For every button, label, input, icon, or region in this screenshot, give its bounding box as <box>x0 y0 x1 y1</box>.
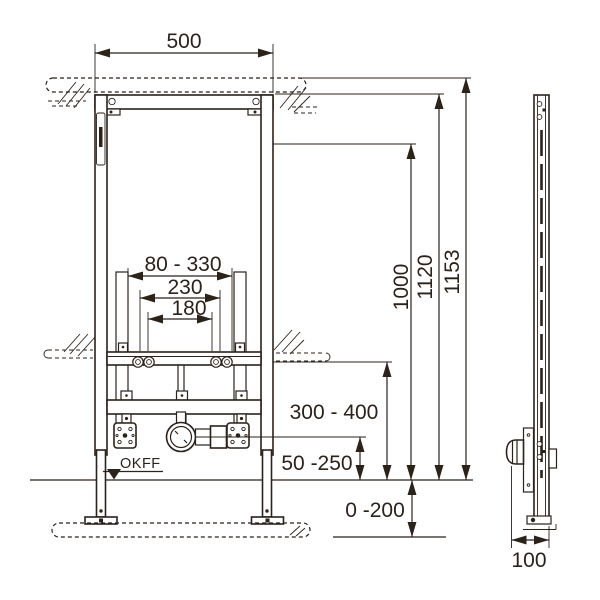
dim-label-connection-outer: 230 <box>167 276 202 299</box>
side-drain-cap <box>507 440 524 464</box>
side-foot <box>527 516 551 524</box>
bottom-slab <box>52 523 310 537</box>
wall-anchor-left <box>44 334 96 358</box>
wall-hatch-left <box>58 82 90 108</box>
mounting-plate-left <box>114 423 136 448</box>
dim-label-height-total: 1153 <box>441 249 464 294</box>
top-crossbar <box>95 95 273 109</box>
dim-frame-width: 500 <box>95 30 273 93</box>
wall-hatch-right <box>280 86 310 112</box>
dim-label-outlet-height: 50 -250 <box>281 452 352 475</box>
side-tab <box>549 449 557 468</box>
adjustable-legs <box>85 450 284 524</box>
dim-label-connection-range: 80 - 330 <box>144 253 221 276</box>
wall-anchor-right <box>274 330 330 361</box>
dim-label-drain-height: 300 - 400 <box>290 401 379 424</box>
dim-label-depth: 100 <box>511 549 546 572</box>
mounting-plate-right <box>227 423 249 448</box>
dim-label-connection-inner: 180 <box>171 297 206 320</box>
right-upright <box>261 95 273 455</box>
dim-label-frame-width: 500 <box>166 30 201 53</box>
front-view: 500 <box>30 30 473 537</box>
side-bracket <box>524 428 534 492</box>
upper-rail <box>107 352 261 365</box>
technical-drawing-canvas: 500 <box>0 0 600 600</box>
dim-label-height-1120: 1120 <box>414 254 437 299</box>
dim-label-floor-buildup: 0 -200 <box>345 499 405 522</box>
dim-connection-group: 80 - 330 230 180 <box>128 253 232 351</box>
side-view: 100 <box>507 95 557 572</box>
dim-label-height-1000: 1000 <box>390 264 413 311</box>
level-triangle-icon <box>107 469 121 480</box>
drain-fitting <box>167 412 227 452</box>
floor-level-marker: OKFF <box>103 456 163 480</box>
okff-label: OKFF <box>120 456 161 472</box>
installation-frame-drawing: 500 <box>0 0 600 600</box>
dim-height-group: 1153 1120 1000 300 - 400 50 -250 0 -200 <box>273 78 471 537</box>
